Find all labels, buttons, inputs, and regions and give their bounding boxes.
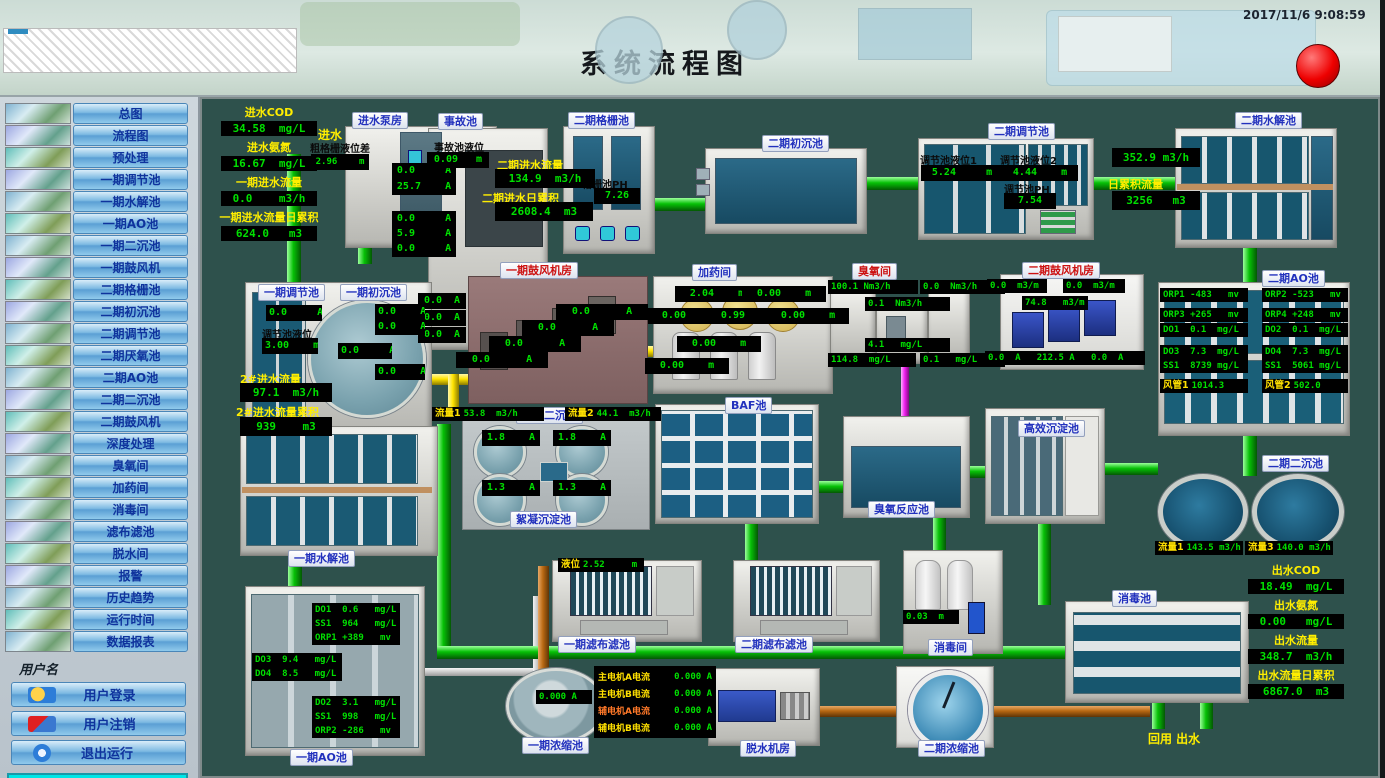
readout-p2-hyd-total: 3256 m3: [1112, 191, 1200, 210]
readout-duct2: 风管2502.0: [1262, 379, 1348, 393]
plate-p2-secondary[interactable]: 二期二沉池: [1262, 455, 1329, 472]
thumbnail-icon: [5, 279, 71, 300]
readout-p2-hyd-flow: 352.9 m3/h: [1112, 148, 1200, 167]
pipe-green: [1200, 699, 1213, 729]
plate-p1-ao[interactable]: 一期AO池: [290, 749, 353, 766]
thumbnail-icon: [5, 213, 71, 234]
thumbnail-icon: [5, 147, 71, 168]
pump-icon: [408, 150, 422, 164]
thumbnail-icon: [5, 521, 71, 542]
plate-p1-regulating[interactable]: 一期调节池: [258, 284, 325, 301]
user-button-label: 用户登录: [56, 685, 163, 704]
plate-dosing[interactable]: 加药间: [692, 264, 737, 281]
stat-value: 0.0 m3/h: [221, 191, 317, 206]
sidebar-nav: 总图 流程图 预处理 一期调节池: [5, 103, 198, 652]
sidebar-item[interactable]: 二期AO池: [5, 367, 198, 388]
p1-hydrolysis-cells: [246, 496, 418, 546]
thumbnail-icon: [5, 543, 71, 564]
readout-p1ao: DO3 9.4 mg/L: [252, 653, 342, 667]
motor-label: 辅电机A电流: [598, 704, 650, 717]
photo-tank-icon: [727, 0, 787, 60]
thumbnail-icon: [5, 323, 71, 344]
sidebar-item-bar: 运行时间: [73, 609, 188, 630]
dewater-motor-block: 主电机A电流 0.000 A 主电机B电流 0.000 A 辅电机A电流 0.0…: [594, 666, 716, 738]
sidebar-item[interactable]: 深度处理: [5, 433, 198, 454]
user-button-label: 退出运行: [51, 743, 163, 762]
baf-cells: [661, 410, 813, 518]
scada-app: 系统流程图 2017/11/6 9:08:59 总图 流程图: [0, 0, 1385, 778]
stat-label: 出水流量: [1274, 632, 1318, 648]
filter2-tray: [760, 620, 848, 635]
stat-value: 6867.0 m3: [1248, 684, 1344, 699]
pipe-green: [745, 521, 758, 563]
plate-p1-blower[interactable]: 一期鼓风机房: [500, 262, 578, 279]
sidebar: 总图 流程图 预处理 一期调节池: [0, 97, 200, 778]
readout-filter-level: 液位2.52 m: [558, 558, 644, 572]
stat-label: 进水COD: [245, 104, 294, 120]
plate-ozone-reaction[interactable]: 臭氧反应池: [868, 501, 935, 518]
sidebar-item[interactable]: 消毒间: [5, 499, 198, 520]
sidebar-item[interactable]: 一期AO池: [5, 213, 198, 234]
sidebar-item-label: 二期二沉池: [100, 391, 160, 408]
duct2-label: 风管2: [1265, 380, 1291, 391]
readout-duct1: 风管11014.3: [1160, 379, 1248, 393]
readout-blower-current: 0.0 A: [489, 336, 581, 352]
flow1-label: 流量1: [1158, 542, 1184, 553]
thumbnail-icon: [5, 257, 71, 278]
sidebar-item-bar: 一期调节池: [73, 169, 188, 190]
plate-grid-tank[interactable]: 二期格栅池: [568, 112, 635, 129]
readout-current: 0.0 A: [375, 319, 425, 335]
thumbnail-icon: [5, 301, 71, 322]
filter2-window: [750, 566, 832, 616]
readout-p2-blower: 0.0 m3/m: [987, 279, 1047, 293]
sidebar-item-bar: 数据报表: [73, 631, 188, 652]
readout-accident-current: 0.0 A: [418, 293, 466, 309]
sidebar-item-bar: 二期调节池: [73, 323, 188, 344]
flow3-value: 140.0 m3/h: [1277, 543, 1331, 553]
readout-p2ao: SS1 5061 mg/L: [1262, 359, 1348, 373]
sidebar-item[interactable]: 预处理: [5, 147, 198, 168]
readout-p2ao: ORP3 +265 mv: [1160, 308, 1248, 322]
sidebar-item[interactable]: 二期鼓风机: [5, 411, 198, 432]
readout-pump-current: 0.0 A: [392, 211, 456, 227]
readout-p2ao: DO4 7.3 mg/L: [1262, 345, 1348, 359]
stat-label: 进水氨氮: [247, 139, 291, 155]
blower-icon: [1048, 306, 1080, 342]
sidebar-item-bar: 预处理: [73, 147, 188, 168]
readout-clarifier-current: 1.8 A: [482, 430, 540, 446]
plate-p2-regulating[interactable]: 二期调节池: [988, 123, 1055, 140]
filter-level-label: 液位: [561, 559, 580, 570]
plate-dewater[interactable]: 脱水机房: [740, 740, 796, 757]
readout-p2ao: ORP2 -523 mv: [1262, 288, 1348, 302]
stat-value: 34.58 mg/L: [221, 121, 317, 136]
sidebar-item-label: 历史趋势: [106, 589, 154, 606]
sidebar-item-label: 一期AO池: [103, 215, 159, 232]
dewater-machine-icon: [718, 690, 776, 722]
readout-p2-reg-level1: 5.24 m: [921, 165, 1003, 181]
thumbnail-icon: [5, 411, 71, 432]
sidebar-item[interactable]: 一期二沉池: [5, 235, 198, 256]
thumbnail-icon: [5, 565, 71, 586]
readout-blower-current: 0.0 A: [456, 352, 548, 368]
readout-p2ao: DO2 0.1 mg/L: [1262, 323, 1348, 337]
readout-ozone: 0.1 Nm3/h: [865, 297, 950, 311]
p2-hyd-total-label: 日累积流量: [1108, 176, 1163, 192]
thumbnail-icon: [5, 433, 71, 454]
pump-icon: [696, 168, 710, 180]
pipe-green: [862, 177, 920, 190]
plate-p1-hydrolysis[interactable]: 一期水解池: [288, 550, 355, 567]
plate-p2-ao[interactable]: 二期AO池: [1262, 270, 1325, 287]
readout-p1ao: DO4 8.5 mg/L: [252, 667, 342, 681]
user-button-icon: [28, 687, 56, 703]
sidebar-item-label: 消毒间: [112, 501, 148, 518]
photo-pool-icon: [858, 8, 972, 60]
plate-high-eff[interactable]: 高效沉淀池: [1018, 420, 1085, 437]
readout-p2sec-flow3: 流量3140.0 m3/h: [1245, 541, 1333, 555]
plate-p2-primary[interactable]: 二期初沉池: [762, 135, 829, 152]
stat-row: 出水氨氮 0.00 mg/L: [1248, 597, 1344, 632]
outlet-stats: 出水COD 18.49 mg/L 出水氨氮 0.00 mg/L 出水流量 348…: [1244, 562, 1348, 702]
motor-row: 辅电机A电流 0.000 A: [598, 702, 712, 719]
readout-dosing-level: 0.00 m: [767, 308, 849, 324]
readout-pump-current: 25.7 A: [392, 179, 456, 195]
p2-hydrolysis-cells: [1181, 192, 1309, 240]
grid-pump-icon: [575, 226, 590, 241]
pipe-green: [1243, 430, 1257, 476]
readout-current: 0.0 A: [375, 304, 425, 320]
readout-thickener-current: 0.000 A: [536, 690, 592, 704]
readout-ozone: 114.8 mg/L: [828, 353, 916, 367]
tank-cylinder-icon: [915, 560, 941, 610]
motor-label: 辅电机B电流: [598, 721, 650, 734]
pipe-tan: [242, 487, 432, 493]
pipe-green: [1100, 463, 1158, 475]
thumbnail-icon: [5, 169, 71, 190]
sidebar-item-label: 总图: [118, 105, 142, 122]
user-button-label: 用户注销: [56, 714, 163, 733]
sidebar-item-label: 二期鼓风机: [100, 413, 160, 430]
plate-filter2[interactable]: 二期滤布滤池: [735, 636, 813, 653]
stat-row: 一期进水流量 0.0 m3/h: [221, 174, 317, 209]
thumbnail-icon: [5, 587, 71, 608]
user-button[interactable]: 退出运行: [11, 740, 186, 765]
motor-row: 辅电机B电流 0.000 A: [598, 719, 712, 736]
user-button-icon: [28, 716, 56, 732]
readout-p2ao: ORP1 -483 mv: [1160, 288, 1248, 302]
grid-pump-icon: [625, 226, 640, 241]
flow1-value: 143.5 m3/h: [1187, 543, 1241, 553]
pipe-green: [1038, 521, 1051, 605]
plate-disinfect-tank[interactable]: 消毒池: [1112, 590, 1157, 607]
stat-row: 出水流量 348.7 m3/h: [1248, 632, 1344, 667]
readout-dosing-level: 0.00 m: [645, 358, 729, 374]
plate-floc-tank[interactable]: 絮凝沉淀池: [510, 511, 577, 528]
stat-value: 624.0 m3: [221, 226, 317, 241]
photo-green-icon: [300, 2, 520, 46]
sidebar-item-bar: 二期二沉池: [73, 389, 188, 410]
stat-row: 出水流量日累积 6867.0 m3: [1248, 667, 1344, 702]
sidebar-item[interactable]: 一期调节池: [5, 169, 198, 190]
clock: 2017/11/6 9:08:59: [1243, 8, 1366, 22]
sidebar-item[interactable]: 加药间: [5, 477, 198, 498]
readout-p1ao: SS1 964 mg/L: [312, 617, 400, 631]
sidebar-item-bar: 二期初沉池: [73, 301, 188, 322]
pipe-green: [815, 481, 845, 493]
motor-value: 0.000 A: [674, 672, 712, 682]
thumbnail-icon: [5, 235, 71, 256]
duct1-label: 风管1: [1163, 380, 1189, 391]
duct2-value: 502.0: [1294, 381, 1321, 391]
readout-pump-current: 0.0 A: [392, 241, 456, 257]
stat-label: 出水氨氮: [1274, 597, 1318, 613]
readout-blower-current: 0.0 A: [556, 304, 648, 320]
p2-primary-water: [715, 158, 857, 224]
sidebar-item-label: 一期调节池: [100, 171, 160, 188]
readout-p2ao: DO1 0.1 mg/L: [1160, 323, 1248, 337]
sidebar-item-bar: 一期AO池: [73, 213, 188, 234]
readout-ozone: 100.1 Nm3/h: [828, 280, 918, 294]
plate-p1-primary[interactable]: 一期初沉池: [340, 284, 407, 301]
motor-value: 0.000 A: [674, 723, 712, 733]
sidebar-item-label: 二期AO池: [103, 369, 159, 386]
sidebar-item[interactable]: 报警: [5, 565, 198, 586]
user-button[interactable]: 用户登录: [11, 682, 186, 707]
filter1-tray: [580, 620, 668, 635]
sidebar-item-label: 滤布滤池: [106, 523, 154, 540]
user-button[interactable]: 用户注销: [11, 711, 186, 736]
readout-p1ao: ORP1 +389 mv: [312, 631, 400, 645]
sidebar-item-bar: 消毒间: [73, 499, 188, 520]
sidebar-item-bar: 一期水解池: [73, 191, 188, 212]
readout-accident-current: 0.0 A: [418, 327, 466, 343]
thumbnail-icon: [5, 125, 71, 146]
readout-p1ao: ORP2 -286 mv: [312, 724, 400, 738]
readout-clarifier-current: 1.3 A: [553, 480, 611, 496]
sidebar-item-label: 深度处理: [106, 435, 154, 452]
sidebar-item-bar: 历史趋势: [73, 587, 188, 608]
flow1-value: 53.8 m3/h: [464, 409, 518, 419]
thumbnail-icon: [5, 631, 71, 652]
sidebar-item-bar: 一期二沉池: [73, 235, 188, 256]
filter1-panel: [656, 566, 694, 616]
plate-p2-hydrolysis[interactable]: 二期水解池: [1235, 112, 1302, 129]
stat-row: 出水COD 18.49 mg/L: [1248, 562, 1344, 597]
readout-p2-blower: 0.0 m3/m: [1063, 279, 1125, 293]
motor-label: 主电机B电流: [598, 687, 650, 700]
stat-label: 一期进水流量: [236, 174, 302, 190]
pipe-tan: [1177, 184, 1333, 190]
sidebar-item-bar: 臭氧间: [73, 455, 188, 476]
stat-value: 16.67 mg/L: [221, 156, 317, 171]
readout-blower-current: 0.0 A: [522, 320, 614, 336]
readout-p1sec-flow1: 流量153.8 m3/h: [432, 407, 544, 421]
dewater-rolls-icon: [780, 692, 810, 720]
flow2-value: 44.1 m3/h: [597, 409, 651, 419]
readout-disinfect-level: 0.03 m: [903, 610, 959, 624]
sidebar-item[interactable]: 二期调节池: [5, 323, 198, 344]
plate-p1-thickener[interactable]: 一期浓缩池: [522, 737, 589, 754]
disinfect-tank-lanes: [1073, 612, 1241, 694]
sidebar-item-bar: 滤布滤池: [73, 521, 188, 542]
pipe-green: [1243, 246, 1257, 286]
sidebar-item-bar: 脱水间: [73, 543, 188, 564]
readout-p1-reg-level: 3.00 m: [262, 338, 318, 354]
readout-p1-reg-total: 939 m3: [240, 417, 332, 436]
sidebar-item-bar: 加药间: [73, 477, 188, 498]
duct1-value: 1014.3: [1192, 381, 1225, 391]
sidebar-item-label: 运行时间: [106, 611, 154, 628]
sidebar-item-label: 报警: [118, 567, 142, 584]
reuse-outlet-text: 回用 出水: [1148, 730, 1200, 747]
sidebar-item[interactable]: 脱水间: [5, 543, 198, 564]
readout-p1-reg-flow: 97.1 m3/h: [240, 383, 332, 402]
sidebar-item[interactable]: 历史趋势: [5, 587, 198, 608]
sidebar-item-bar: 总图: [73, 103, 188, 124]
sidebar-item[interactable]: 二期厌氧池: [5, 345, 198, 366]
sidebar-item[interactable]: 臭氧间: [5, 455, 198, 476]
grid-pump-icon: [600, 226, 615, 241]
sidebar-item-label: 一期水解池: [100, 193, 160, 210]
stat-row: 进水氨氮 16.67 mg/L: [221, 139, 317, 174]
readout-p2-inflow-total: 2608.4 m3: [495, 202, 593, 221]
pipe-yellow: [448, 374, 459, 410]
user-button-icon: [33, 744, 51, 762]
readout-p2-inflow: 134.9 m3/h: [495, 169, 595, 188]
filter-level-value: 2.52 m: [583, 560, 637, 570]
readout-p1ao: SS1 998 mg/L: [312, 710, 400, 724]
sidebar-item-label: 臭氧间: [112, 457, 148, 474]
stat-value: 348.7 m3/h: [1248, 649, 1344, 664]
readout-p2ao: SS1 8739 mg/L: [1160, 359, 1248, 373]
sidebar-item[interactable]: 流程图: [5, 125, 198, 146]
p2-hydrolysis-cells: [1181, 136, 1309, 184]
sidebar-item-label: 数据报表: [106, 633, 154, 650]
plate-accident-tank[interactable]: 事故池: [438, 113, 483, 130]
inlet-stats: 进水COD 34.58 mg/L 进水氨氮 16.67 mg/L 一期进水流量 …: [202, 104, 336, 244]
sidebar-item-label: 加药间: [112, 479, 148, 496]
readout-ozone: 4.1 mg/L: [865, 338, 950, 352]
thumbnail-icon: [5, 455, 71, 476]
readout-dosing-level: 0.00 m: [742, 286, 826, 302]
ozone-reaction-water: [851, 446, 961, 508]
thumbnail-icon: [5, 499, 71, 520]
sidebar-item-bar: 一期鼓风机: [73, 257, 188, 278]
thumbnail-icon: [5, 191, 71, 212]
photo-building-icon: [1058, 16, 1172, 72]
sidebar-item[interactable]: 二期格栅池: [5, 279, 198, 300]
stat-label: 一期进水流量日累积: [220, 209, 319, 225]
sidebar-item[interactable]: 滤布滤池: [5, 521, 198, 542]
username-label: 用户名: [19, 659, 198, 678]
thumbnail-icon: [5, 345, 71, 366]
sidebar-item[interactable]: 一期鼓风机: [5, 257, 198, 278]
blower-icon: [1012, 312, 1044, 348]
filter2-panel: [836, 566, 872, 616]
sidebar-item-bar: 二期格栅池: [73, 279, 188, 300]
sidebar-item[interactable]: 总图: [5, 103, 198, 124]
motor-row: 主电机B电流 0.000 A: [598, 685, 712, 702]
blower-icon: [1084, 300, 1116, 336]
sidebar-item-bar: 二期厌氧池: [73, 345, 188, 366]
readout-p1ao: DO1 0.6 mg/L: [312, 603, 400, 617]
stat-row: 一期进水流量日累积 624.0 m3: [220, 209, 319, 244]
sidebar-item-label: 预处理: [112, 149, 148, 166]
sidebar-item-label: 一期鼓风机: [100, 259, 160, 276]
readout-clarifier-current: 1.3 A: [482, 480, 540, 496]
sidebar-item[interactable]: 二期二沉池: [5, 389, 198, 410]
stat-label: 出水COD: [1272, 562, 1321, 578]
pipe-green: [437, 424, 451, 652]
readout-accident-current: 0.0 A: [418, 310, 466, 326]
readout-p2sec-flow1: 流量1143.5 m3/h: [1155, 541, 1243, 555]
sidebar-item-label: 二期初沉池: [100, 303, 160, 320]
plate-disinfect-room[interactable]: 消毒间: [928, 639, 973, 656]
plate-pump-house[interactable]: 进水泵房: [352, 112, 408, 129]
alarm-banner-tab: [8, 29, 28, 34]
thumbnail-icon: [5, 609, 71, 630]
flow1-label: 流量1: [435, 408, 461, 419]
motor-row: 主电机A电流 0.000 A: [598, 668, 712, 685]
plate-p2-thickener[interactable]: 二期浓缩池: [918, 740, 985, 757]
readout-grid-ph: 7.26: [594, 188, 640, 204]
sidebar-item-label: 二期调节池: [100, 325, 160, 342]
right-edge: [1380, 0, 1385, 778]
sidebar-item[interactable]: 运行时间: [5, 609, 198, 630]
header-photo: 系统流程图 2017/11/6 9:08:59: [0, 0, 1385, 97]
equipment-icon: [1040, 210, 1076, 234]
sidebar-item[interactable]: 数据报表: [5, 631, 198, 652]
readout-p2ao: DO3 7.3 mg/L: [1160, 345, 1248, 359]
pump-icon: [696, 184, 710, 196]
plate-p2-blower[interactable]: 二期鼓风机房: [1022, 262, 1100, 279]
readout-current: 0.0 A: [375, 364, 425, 380]
flow3-label: 流量3: [1248, 542, 1274, 553]
motor-value: 0.000 A: [674, 706, 712, 716]
sidebar-item-label: 流程图: [112, 127, 148, 144]
stat-label: 出水流量日累积: [1258, 667, 1335, 683]
readout-p2-blower: 74.8 m3/m: [1022, 296, 1088, 310]
pipe-green: [1152, 699, 1165, 729]
sidebar-item-label: 一期二沉池: [100, 237, 160, 254]
alarm-indicator[interactable]: [1296, 44, 1340, 88]
p1-hydrolysis-cells: [246, 434, 418, 484]
sidebar-item[interactable]: 二期初沉池: [5, 301, 198, 322]
readout-p2ao: ORP4 +248 mv: [1262, 308, 1348, 322]
p2-thickener-gauge: [908, 670, 988, 750]
motor-label: 主电机A电流: [598, 670, 650, 683]
pump-icon: [968, 602, 985, 634]
flow2-label: 流量2: [568, 408, 594, 419]
plate-ozone-room[interactable]: 臭氧间: [852, 263, 897, 280]
stat-value: 18.49 mg/L: [1248, 579, 1344, 594]
readout-p2-reg-level2: 4.44 m: [1002, 165, 1078, 181]
sidebar-item[interactable]: 一期水解池: [5, 191, 198, 212]
readout-pump-current: 5.9 A: [392, 226, 456, 242]
company-label: 山东新日电气设备有限公司: [7, 773, 188, 778]
sidebar-item-bar: 报警: [73, 565, 188, 586]
plate-baf[interactable]: BAF池: [725, 397, 772, 414]
readout-current: 0.0 A: [338, 343, 392, 359]
sidebar-item-bar: 二期AO池: [73, 367, 188, 388]
plate-filter1[interactable]: 一期滤布滤池: [558, 636, 636, 653]
alarm-banner: [3, 28, 297, 73]
pipe-gray: [423, 668, 541, 676]
thumbnail-icon: [5, 367, 71, 388]
readout-current: 0.0 A: [266, 305, 322, 321]
